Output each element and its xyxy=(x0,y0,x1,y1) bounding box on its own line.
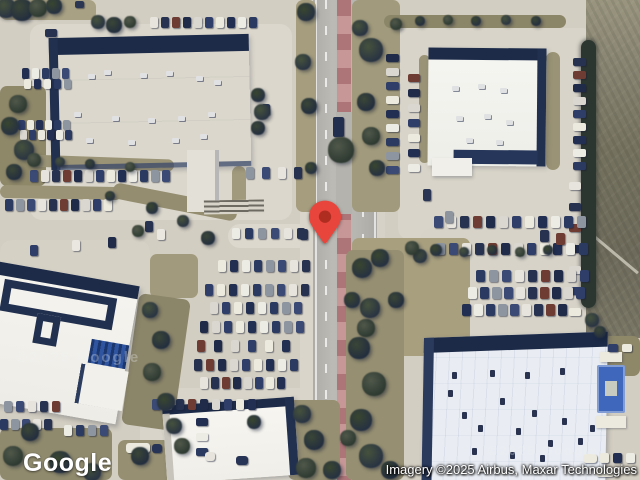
google-logo[interactable]: Google xyxy=(23,449,112,478)
parked-car xyxy=(234,302,242,314)
parked-car xyxy=(222,377,230,389)
parked-car xyxy=(244,377,252,389)
parked-car xyxy=(569,308,581,316)
roof-shadow xyxy=(49,38,61,170)
parked-car xyxy=(65,130,72,140)
parked-car xyxy=(27,199,35,211)
parked-car xyxy=(0,419,8,430)
field-tree-line xyxy=(581,40,596,308)
parked-car xyxy=(502,270,511,282)
parked-car xyxy=(541,270,550,282)
parked-car xyxy=(62,68,69,79)
ground-patch xyxy=(462,412,467,419)
tree xyxy=(29,0,47,17)
tree xyxy=(174,438,190,454)
parked-car xyxy=(64,425,72,436)
parked-car xyxy=(36,120,43,130)
tree xyxy=(177,215,189,227)
parked-car xyxy=(408,134,420,142)
parked-car xyxy=(434,216,443,228)
parked-car xyxy=(230,260,238,272)
ground-patch xyxy=(490,370,495,377)
parked-car xyxy=(210,302,218,314)
parked-car xyxy=(277,377,285,389)
ground-patch xyxy=(104,70,111,75)
parked-car xyxy=(152,444,162,453)
parked-car xyxy=(300,229,308,240)
building-annex xyxy=(432,158,472,176)
tree xyxy=(106,17,122,33)
parked-car xyxy=(282,340,290,352)
building-annex xyxy=(74,363,128,411)
tree xyxy=(142,302,158,318)
parked-car xyxy=(527,243,536,255)
parked-car xyxy=(504,287,513,299)
parked-car xyxy=(271,228,279,239)
parked-car xyxy=(551,216,560,228)
tree xyxy=(157,393,175,411)
parked-car xyxy=(44,419,52,430)
parked-car xyxy=(151,170,159,182)
parked-car xyxy=(254,359,262,371)
parked-car xyxy=(4,401,12,412)
parked-car xyxy=(258,228,266,239)
parked-car xyxy=(172,17,180,28)
parked-car xyxy=(18,120,25,130)
parked-car xyxy=(38,199,46,211)
parked-car xyxy=(260,321,268,333)
parked-car xyxy=(11,419,19,430)
parked-car xyxy=(333,117,344,137)
parked-car xyxy=(564,287,573,299)
parked-car xyxy=(569,182,581,190)
parked-car xyxy=(216,17,224,28)
parked-car xyxy=(236,456,248,465)
ground-patch xyxy=(74,112,81,117)
ground-patch xyxy=(150,254,198,298)
parked-car xyxy=(423,189,431,201)
tree xyxy=(531,16,541,26)
parked-car xyxy=(218,260,226,272)
parked-car xyxy=(248,340,256,352)
parked-car xyxy=(579,243,588,255)
parked-car xyxy=(476,270,485,282)
parked-car xyxy=(88,425,96,436)
parked-car xyxy=(196,418,208,426)
parked-car xyxy=(386,68,399,76)
parked-car xyxy=(282,302,290,314)
parked-car xyxy=(22,68,29,79)
parked-car xyxy=(258,302,266,314)
parked-car xyxy=(408,89,420,97)
parked-car xyxy=(227,17,235,28)
parked-car xyxy=(272,321,280,333)
parked-car xyxy=(486,216,495,228)
parked-car xyxy=(277,284,285,296)
parked-car xyxy=(386,138,399,146)
tree xyxy=(443,15,453,25)
roof-shadow xyxy=(421,338,434,480)
parked-car xyxy=(552,287,561,299)
tree xyxy=(143,363,161,381)
ground-patch xyxy=(128,140,135,145)
parked-car xyxy=(576,287,585,299)
parked-car xyxy=(266,377,274,389)
parked-car xyxy=(76,425,84,436)
parked-car xyxy=(60,199,68,211)
parked-car xyxy=(157,229,165,240)
tree xyxy=(359,444,383,468)
tree xyxy=(27,153,41,167)
parked-car xyxy=(74,170,82,182)
parked-car xyxy=(302,260,310,272)
ground-patch xyxy=(525,372,530,379)
parked-car xyxy=(284,228,292,239)
roof-shadow xyxy=(536,48,546,166)
ground-patch xyxy=(472,448,477,455)
parked-car xyxy=(265,340,273,352)
parked-car xyxy=(266,359,274,371)
parked-car xyxy=(573,58,586,66)
parked-car xyxy=(249,17,257,28)
parked-car xyxy=(5,199,13,211)
parked-car xyxy=(218,359,226,371)
parked-car xyxy=(573,136,586,144)
roof-shadow xyxy=(428,47,546,60)
parked-car xyxy=(573,110,586,118)
ground-patch xyxy=(448,390,453,397)
parked-car xyxy=(296,321,304,333)
parked-car xyxy=(473,216,482,228)
parked-car xyxy=(278,260,286,272)
tree xyxy=(359,38,383,62)
tree xyxy=(362,127,380,145)
parked-car xyxy=(205,452,215,461)
blue-play-court xyxy=(597,365,625,413)
parked-car xyxy=(56,130,63,140)
parked-car xyxy=(386,82,399,90)
ground-patch xyxy=(478,84,485,89)
parked-car xyxy=(301,284,309,296)
parked-car xyxy=(445,211,453,223)
parked-car xyxy=(161,17,169,28)
parked-car xyxy=(100,425,108,436)
parked-car xyxy=(217,284,225,296)
building-northwest xyxy=(49,34,252,170)
parked-car xyxy=(246,167,254,179)
parked-car xyxy=(278,359,286,371)
tree xyxy=(388,292,404,308)
parked-car xyxy=(474,304,483,316)
tree xyxy=(247,415,261,429)
parked-car xyxy=(573,84,586,92)
ground-patch xyxy=(200,134,207,139)
parked-car xyxy=(30,245,38,256)
tree xyxy=(357,93,375,111)
ground-patch xyxy=(196,76,203,81)
tree xyxy=(9,95,27,113)
parked-car xyxy=(255,377,263,389)
tree xyxy=(125,162,135,172)
parked-car xyxy=(566,243,575,255)
tree xyxy=(362,372,386,396)
parked-car xyxy=(241,284,249,296)
parked-car xyxy=(196,433,208,441)
parked-car xyxy=(233,377,241,389)
parked-car xyxy=(197,340,205,352)
tree xyxy=(371,249,389,267)
parked-car xyxy=(468,287,477,299)
parked-car xyxy=(118,170,126,182)
parked-car xyxy=(242,260,250,272)
parked-car xyxy=(499,216,508,228)
parked-car xyxy=(386,166,399,174)
tree xyxy=(55,157,65,167)
parked-car xyxy=(475,243,484,255)
parked-car xyxy=(85,170,93,182)
ground-patch xyxy=(532,410,537,417)
parked-car xyxy=(38,130,45,140)
tree xyxy=(340,430,356,446)
parked-car xyxy=(554,270,563,282)
striped-canopy xyxy=(204,199,264,214)
tree xyxy=(515,247,525,257)
parked-car xyxy=(41,170,49,182)
location-pin-icon[interactable] xyxy=(309,200,341,244)
parked-car xyxy=(194,359,202,371)
parked-car xyxy=(200,377,208,389)
parked-car xyxy=(188,399,196,410)
parked-car xyxy=(408,119,420,127)
parked-car xyxy=(232,228,240,239)
parked-car xyxy=(294,167,302,179)
parked-car xyxy=(238,17,246,28)
parked-car xyxy=(96,170,104,182)
parked-car xyxy=(30,170,38,182)
parked-car xyxy=(573,123,586,131)
small-structure xyxy=(596,416,626,428)
parked-car xyxy=(20,130,27,140)
parked-car xyxy=(212,399,220,410)
ground-patch xyxy=(500,88,507,93)
tree xyxy=(146,202,158,214)
parked-car xyxy=(573,71,586,79)
parked-car xyxy=(262,167,270,179)
parked-car xyxy=(206,359,214,371)
parked-car xyxy=(54,120,61,130)
parked-car xyxy=(28,401,36,412)
parked-car xyxy=(386,54,399,62)
tree xyxy=(328,137,354,163)
parked-car xyxy=(16,401,24,412)
tree xyxy=(594,326,606,338)
parked-car xyxy=(498,304,507,316)
parked-car xyxy=(462,304,471,316)
tree xyxy=(487,245,497,255)
parked-car xyxy=(229,284,237,296)
tree xyxy=(251,121,265,135)
tree xyxy=(405,241,419,255)
tree xyxy=(352,20,368,36)
tree xyxy=(6,164,22,180)
parked-car xyxy=(253,284,261,296)
parked-car xyxy=(510,304,519,316)
parked-car xyxy=(501,243,510,255)
ground-patch xyxy=(88,74,95,79)
parked-car xyxy=(386,152,399,160)
ground-patch xyxy=(506,120,513,125)
parked-car xyxy=(45,120,52,130)
tree xyxy=(85,159,95,169)
ground-patch xyxy=(140,73,147,78)
parked-car xyxy=(236,321,244,333)
tree xyxy=(348,337,370,359)
tree xyxy=(415,16,425,26)
tree xyxy=(350,409,372,431)
parked-car xyxy=(245,228,253,239)
parked-car xyxy=(622,344,632,352)
tree xyxy=(46,0,62,14)
tree xyxy=(360,298,380,318)
tree xyxy=(301,98,317,114)
parked-car xyxy=(52,401,60,412)
parked-car xyxy=(42,68,49,79)
parked-car xyxy=(294,302,302,314)
parked-car xyxy=(248,399,256,410)
parked-car xyxy=(515,270,524,282)
parked-car xyxy=(254,260,262,272)
parked-car xyxy=(194,17,202,28)
parked-car xyxy=(265,284,273,296)
tree xyxy=(369,160,385,176)
tree xyxy=(501,15,511,25)
parked-car xyxy=(386,96,399,104)
parked-car xyxy=(290,359,298,371)
parked-car xyxy=(242,359,250,371)
parked-car xyxy=(49,199,57,211)
tree xyxy=(585,313,599,327)
parked-car xyxy=(573,149,586,157)
tree xyxy=(124,16,136,28)
tree xyxy=(152,331,170,349)
parked-car xyxy=(525,216,534,228)
parked-car xyxy=(63,170,71,182)
tree xyxy=(390,18,402,30)
parked-car xyxy=(522,304,531,316)
parked-car xyxy=(408,164,420,172)
ground-patch xyxy=(148,118,155,123)
parked-car xyxy=(108,237,116,248)
parked-car xyxy=(224,399,232,410)
map-canvas[interactable]: ©2025 Google ©2025 Google Google Imagery… xyxy=(0,0,640,480)
tree xyxy=(105,191,115,201)
parked-car xyxy=(449,243,458,255)
roof-shadow xyxy=(49,34,249,55)
parked-car xyxy=(573,162,586,170)
parked-car xyxy=(577,216,586,228)
parked-car xyxy=(540,230,549,242)
parked-car xyxy=(52,68,59,79)
tree xyxy=(201,231,215,245)
parked-car xyxy=(205,17,213,28)
tree xyxy=(459,247,469,257)
parked-car xyxy=(489,270,498,282)
ground-patch xyxy=(590,425,595,432)
parked-car xyxy=(580,270,589,282)
building-southwest xyxy=(0,260,140,424)
parked-car xyxy=(183,17,191,28)
ground-patch xyxy=(166,71,173,76)
tree xyxy=(166,418,182,434)
tree xyxy=(352,258,372,278)
tree xyxy=(304,430,324,450)
ground-patch xyxy=(466,138,473,143)
parked-car xyxy=(608,344,618,352)
google-watermark: ©2025 Google xyxy=(16,349,140,366)
parked-car xyxy=(72,240,80,251)
ground-patch xyxy=(172,138,179,143)
tree xyxy=(131,447,149,465)
parked-car xyxy=(573,97,586,105)
parked-car xyxy=(200,321,208,333)
parked-car xyxy=(284,321,292,333)
parked-car xyxy=(289,284,297,296)
parked-car xyxy=(408,74,420,82)
parked-car xyxy=(528,287,537,299)
parked-car xyxy=(44,79,51,89)
parked-car xyxy=(205,284,213,296)
ground-patch xyxy=(452,86,459,91)
parked-car xyxy=(214,340,222,352)
parked-car xyxy=(176,399,184,410)
parked-car xyxy=(512,216,521,228)
parked-car xyxy=(32,68,39,79)
parked-car xyxy=(528,270,537,282)
tree xyxy=(357,319,375,337)
parked-car xyxy=(246,302,254,314)
tree xyxy=(430,244,442,256)
parked-car xyxy=(266,260,274,272)
parked-car xyxy=(54,79,61,89)
parked-car xyxy=(45,29,57,37)
parked-car xyxy=(93,199,101,211)
parked-car xyxy=(24,79,31,89)
ground-patch xyxy=(452,372,457,379)
imagery-attribution: Imagery ©2025 Airbus, Maxar Technologies xyxy=(386,462,637,477)
tree xyxy=(297,3,315,21)
ground-patch xyxy=(112,116,119,121)
parked-car xyxy=(534,304,543,316)
parked-car xyxy=(140,170,148,182)
tree xyxy=(296,458,316,478)
ground-patch xyxy=(500,398,505,405)
ground-patch xyxy=(562,418,567,425)
tree xyxy=(251,88,265,102)
parked-car xyxy=(480,287,489,299)
tree xyxy=(295,54,311,70)
small-structure xyxy=(600,352,622,362)
parked-car xyxy=(248,321,256,333)
parked-car xyxy=(460,216,469,228)
courtyard-stem xyxy=(32,313,61,347)
tree xyxy=(254,104,270,120)
parked-car xyxy=(290,260,298,272)
parked-car xyxy=(564,216,573,228)
parked-car xyxy=(27,120,34,130)
ground-patch xyxy=(484,114,491,119)
parked-car xyxy=(386,124,399,132)
parked-car xyxy=(107,170,115,182)
